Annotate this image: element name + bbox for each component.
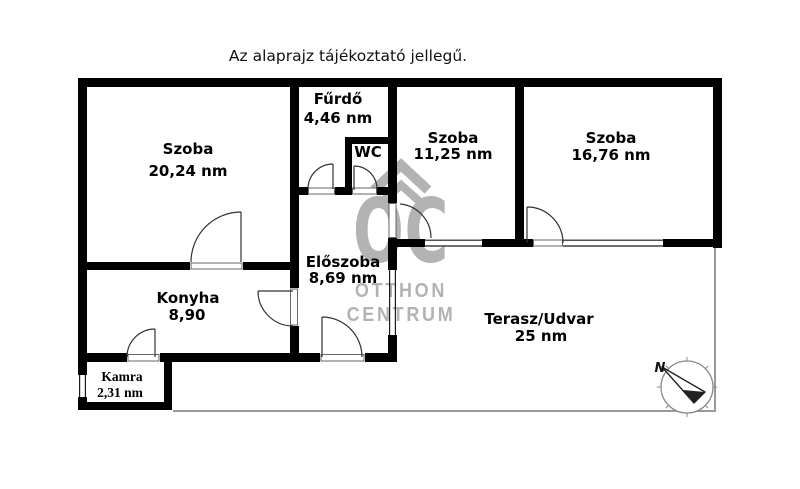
door-leaf [353,188,377,194]
room-area-konyha: 8,90 [168,306,205,324]
page-title: Az alaprajz tájékoztató jellegű. [229,47,467,65]
walls [78,78,722,410]
floorplan-svg: OC OTTHON CENTRUM Az alaprajz tájékoztat… [0,0,800,489]
room-area-terasz: 25 nm [515,327,567,345]
room-area-szoba1: 20,24 nm [149,162,228,180]
north-label: N [655,361,666,376]
room-label-konyha: Konyha [157,289,220,307]
room-area-szoba3: 16,76 nm [572,146,651,164]
floorplan-page: OC OTTHON CENTRUM Az alaprajz tájékoztat… [0,0,800,489]
room-area-eloszoba: 8,69 nm [309,269,378,287]
room-label-terasz: Terasz/Udvar [484,310,594,328]
door-leaf [291,289,298,325]
door-leaf [128,355,159,362]
door-leaf [534,240,563,246]
room-area-furdo: 4,46 nm [304,109,373,127]
door-leaf [321,355,364,362]
door-leaf [389,204,396,238]
room-label-furdo: Fűrdő [314,90,363,108]
compass-icon: N [655,357,717,417]
room-label-szoba1: Szoba [163,140,214,158]
room-label-wc: WC [354,143,382,161]
room-area-kamra: 2,31 nm [97,385,144,400]
door-leaf [191,263,242,269]
room-label-kamra: Kamra [101,369,142,384]
door-leaf [309,188,335,194]
room-label-szoba3: Szoba [586,129,637,147]
watermark-line2: CENTRUM [347,304,456,326]
room-area-szoba2: 11,25 nm [414,145,493,163]
